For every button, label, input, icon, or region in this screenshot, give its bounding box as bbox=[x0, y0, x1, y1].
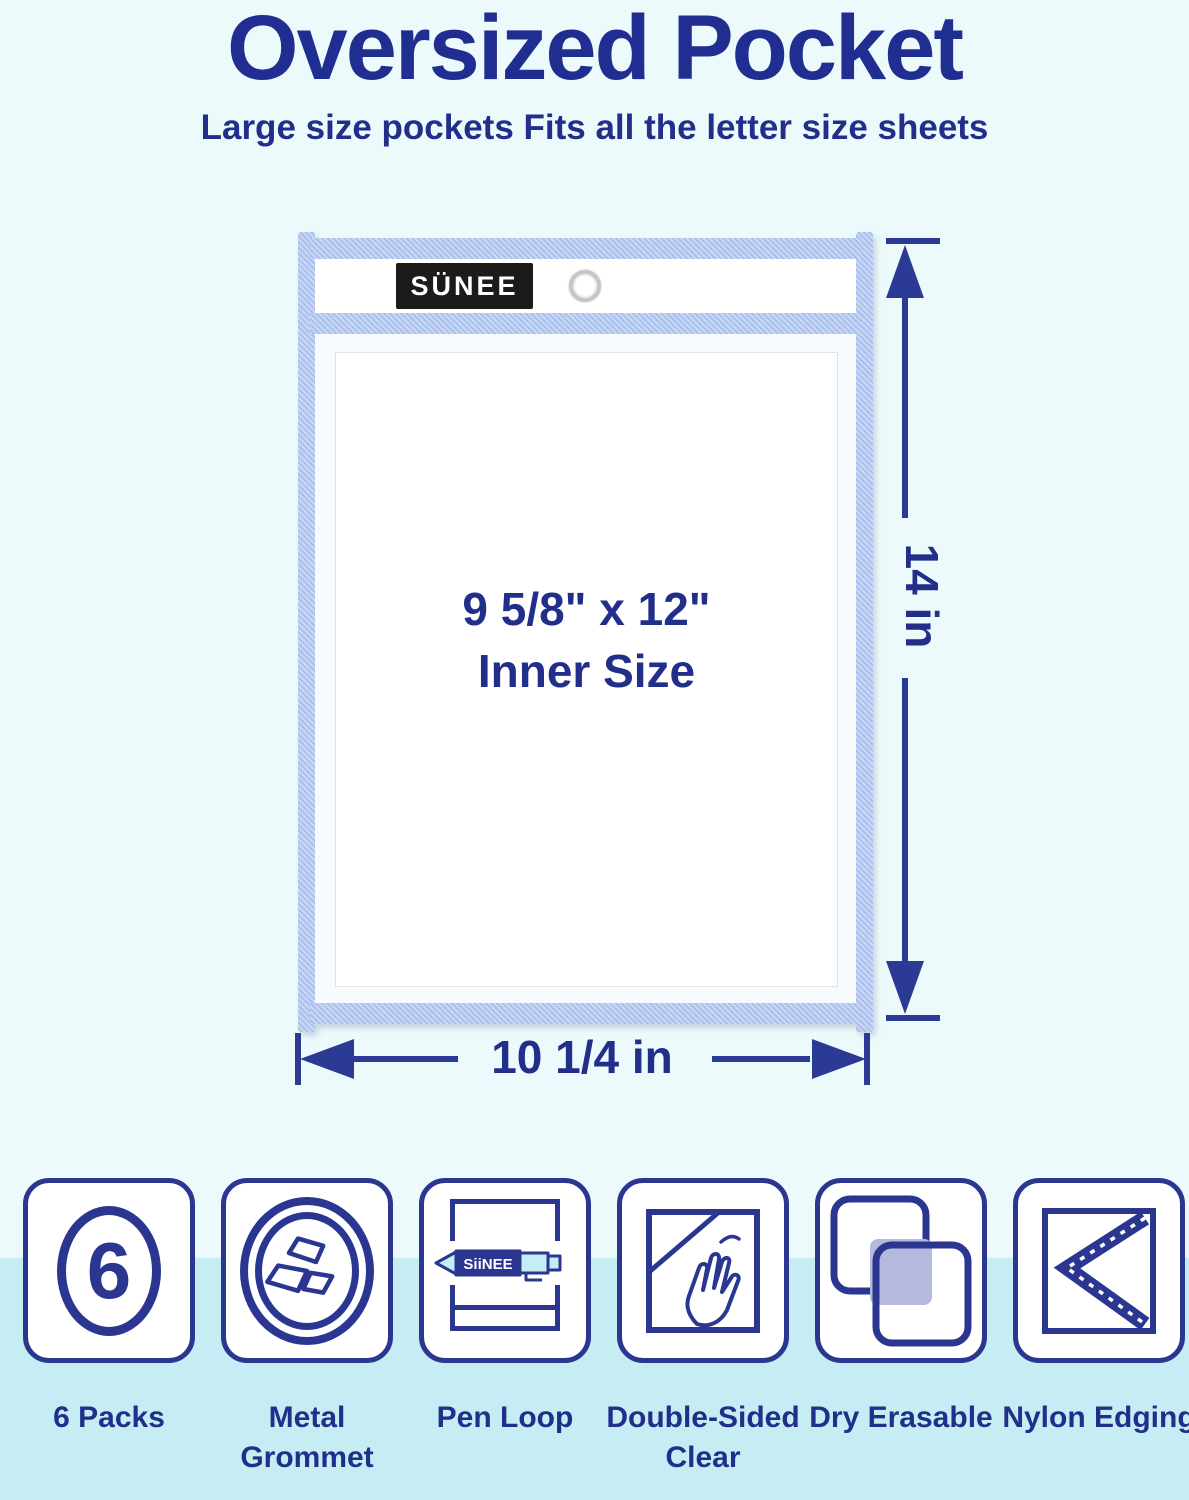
feature-label-double-sided-clear: Double-Sided Clear bbox=[605, 1398, 801, 1478]
height-dimension-label: 14 in bbox=[896, 516, 948, 676]
pack-count: 6 bbox=[87, 1225, 132, 1317]
inner-sheet: 9 5/8" x 12" Inner Size bbox=[335, 352, 838, 987]
feature-card-pen-loop: SiiNEE bbox=[419, 1178, 591, 1363]
feature-card-dry-erasable bbox=[815, 1178, 987, 1363]
pocket-right-edging bbox=[856, 232, 873, 1032]
feature-card-double-sided-clear bbox=[617, 1178, 789, 1363]
width-dimension-label: 10 1/4 in bbox=[452, 1032, 712, 1082]
double-sided-clear-icon bbox=[643, 1206, 763, 1336]
feature-label-dry-erasable: Dry Erasable bbox=[803, 1398, 999, 1438]
inner-size-line1: 9 5/8" x 12" bbox=[336, 578, 837, 640]
pocket-bottom-edging bbox=[310, 1003, 861, 1024]
feature-label-6-packs: 6 Packs bbox=[11, 1398, 207, 1438]
pocket-top-edging bbox=[310, 238, 861, 259]
feature-label-metal-grommet: Metal Grommet bbox=[209, 1398, 405, 1478]
nylon-edging-icon bbox=[1039, 1205, 1159, 1337]
metal-grommet-icon bbox=[240, 1197, 374, 1345]
gold-bars-icon bbox=[262, 1232, 352, 1310]
feature-card-6-packs: 6 bbox=[23, 1178, 195, 1363]
dry-erasable-icon bbox=[826, 1191, 976, 1351]
pocket-header-band: SÜNEE bbox=[311, 259, 860, 313]
grommet-icon bbox=[569, 270, 601, 302]
feature-card-metal-grommet bbox=[221, 1178, 393, 1363]
marker-pen-icon: SiiNEE bbox=[430, 1243, 580, 1283]
inner-size-line2: Inner Size bbox=[336, 640, 837, 702]
feature-card-nylon-edging bbox=[1013, 1178, 1185, 1363]
page-subtitle: Large size pockets Fits all the letter s… bbox=[0, 108, 1189, 148]
pen-brand-text: SiiNEE bbox=[463, 1256, 512, 1273]
brand-label: SÜNEE bbox=[396, 263, 533, 309]
feature-label-pen-loop: Pen Loop bbox=[407, 1398, 603, 1438]
page-title: Oversized Pocket bbox=[0, 0, 1189, 104]
pocket-mid-edging bbox=[310, 313, 861, 334]
inner-size-text: 9 5/8" x 12" Inner Size bbox=[336, 578, 837, 702]
pocket-left-edging bbox=[298, 232, 315, 1032]
pocket-illustration: SÜNEE 9 5/8" x 12" Inner Size bbox=[298, 232, 873, 1032]
feature-label-nylon-edging: Nylon Edging bbox=[1001, 1398, 1189, 1438]
six-count-icon: 6 bbox=[57, 1206, 161, 1336]
product-infographic: Oversized Pocket Large size pockets Fits… bbox=[0, 0, 1189, 1500]
